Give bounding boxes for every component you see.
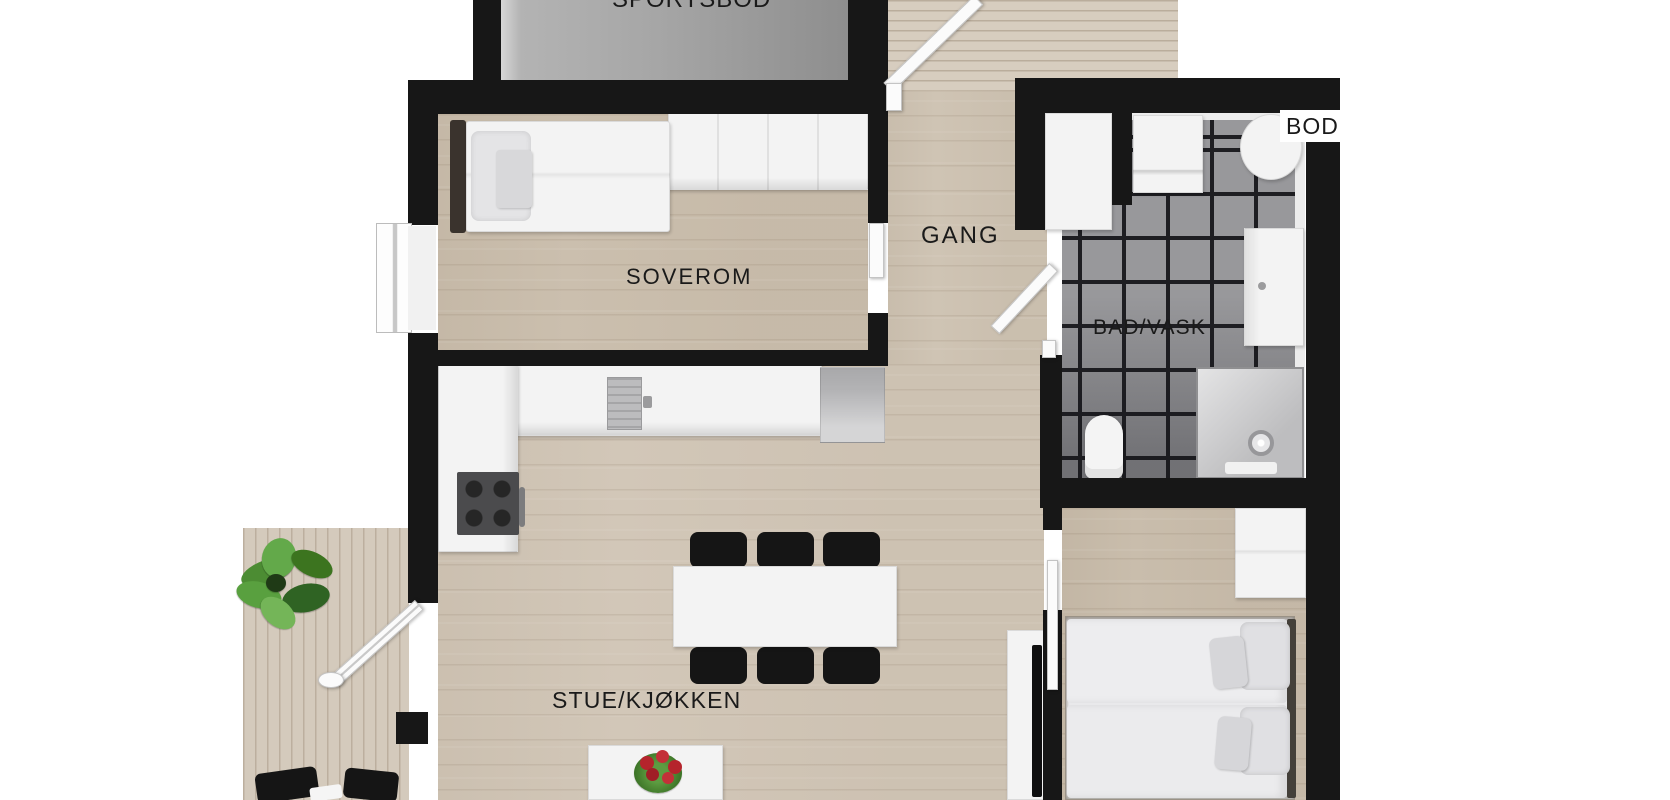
wall-right <box>1306 78 1340 800</box>
shower-head <box>1248 430 1274 456</box>
single-bed-headboard <box>450 120 466 233</box>
dining-chair <box>757 532 814 568</box>
cooktop-handle <box>519 487 525 527</box>
bathroom-vanity <box>1244 228 1304 346</box>
wall-soverom-gang-upper <box>868 80 888 223</box>
toilet <box>1085 415 1123 479</box>
soverom-closet <box>668 113 868 190</box>
floor-plan: SPORTSBOD SOVEROM GANG BAD/VASK BOD STUE… <box>0 0 1670 800</box>
dining-chair <box>690 647 747 684</box>
bed-cushion-1 <box>1208 635 1248 689</box>
wall-kitchen-top <box>408 350 888 366</box>
wall-bath-bottom <box>1040 478 1340 508</box>
washing-machine <box>1133 115 1203 193</box>
wall-gang-bath-upper <box>1015 103 1045 230</box>
entry-deck <box>870 0 1178 90</box>
room-label-soverom: SOVEROM <box>626 266 752 288</box>
wall-top-bath <box>1015 78 1340 113</box>
shower-tray <box>1225 462 1277 474</box>
bouquet-flower <box>656 750 669 763</box>
dining-chair <box>757 647 814 684</box>
wall-left-mid <box>408 333 438 603</box>
dining-chair <box>690 532 747 568</box>
kitchen-faucet <box>643 396 652 408</box>
plant-pot <box>266 574 286 592</box>
wall-left-bottom-nub <box>396 712 428 744</box>
dining-chair <box>823 647 880 684</box>
lounge-chair <box>343 767 400 800</box>
bedroom-door <box>1047 560 1058 690</box>
soverom-window-sill <box>408 226 436 330</box>
cooktop <box>457 472 519 535</box>
kitchen-cabinet-gray <box>820 367 885 443</box>
bedroom-wardrobe <box>1235 508 1306 598</box>
single-bed-blanket <box>496 150 532 208</box>
room-label-bod: BOD <box>1286 115 1339 138</box>
room-label-stue-kjokken: STUE/KJØKKEN <box>552 689 742 712</box>
bathroom-door-post <box>1042 340 1056 358</box>
vanity-faucet <box>1258 282 1266 290</box>
bouquet-flower <box>646 768 659 781</box>
bouquet-flower <box>662 772 674 784</box>
wall-bath-left-top <box>1112 103 1132 205</box>
soverom-door <box>869 223 884 278</box>
balcony-door-handle <box>318 672 344 688</box>
wall-bath-left-lower <box>1040 355 1062 480</box>
dining-table <box>673 566 897 647</box>
bed-cushion-2 <box>1214 716 1252 772</box>
tv <box>1032 645 1042 797</box>
wall-top-main <box>408 80 888 114</box>
kitchen-sink <box>607 377 642 430</box>
room-label-gang: GANG <box>921 224 1000 248</box>
entry-door-frame <box>886 83 902 111</box>
gang-wardrobe <box>1045 113 1112 230</box>
wall-left-upper <box>408 80 438 225</box>
wall-bedroom-left-nub <box>1043 508 1062 530</box>
soverom-window <box>376 223 412 333</box>
room-label-sportsbod: SPORTSBOD <box>612 0 771 12</box>
room-label-bad-vask: BAD/VASK <box>1093 317 1206 338</box>
dining-chair <box>823 532 880 568</box>
